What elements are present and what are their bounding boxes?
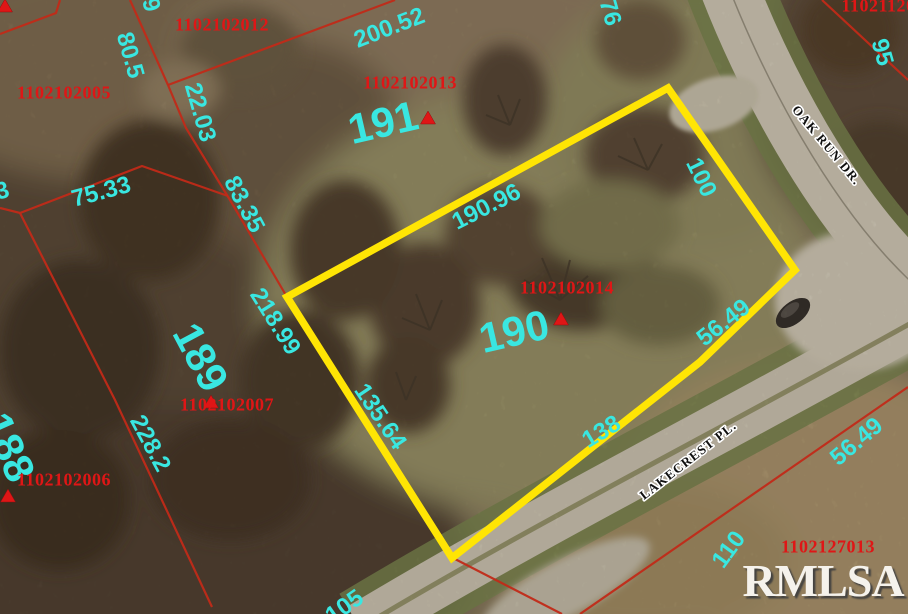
parcel-id-label: 1102112013 [841, 0, 908, 15]
parcel-id-label: 1102102007 [180, 394, 274, 414]
parcel-id-label: 1102102014 [520, 277, 614, 297]
watermark-logo: RMLSA [742, 555, 904, 606]
parcel-map-image: 4980.522.03200.527695100190.9683.3575.33… [0, 0, 908, 614]
parcel-id-label: 1102127013 [781, 536, 875, 556]
aerial-parcel-map: 4980.522.03200.527695100190.9683.3575.33… [0, 0, 908, 614]
parcel-id-label: 1102102006 [17, 469, 111, 489]
parcel-id-label: 1102102005 [17, 82, 111, 102]
parcel-id-label: 1102102012 [175, 14, 269, 34]
parcel-id-label: 1102102013 [363, 72, 457, 92]
